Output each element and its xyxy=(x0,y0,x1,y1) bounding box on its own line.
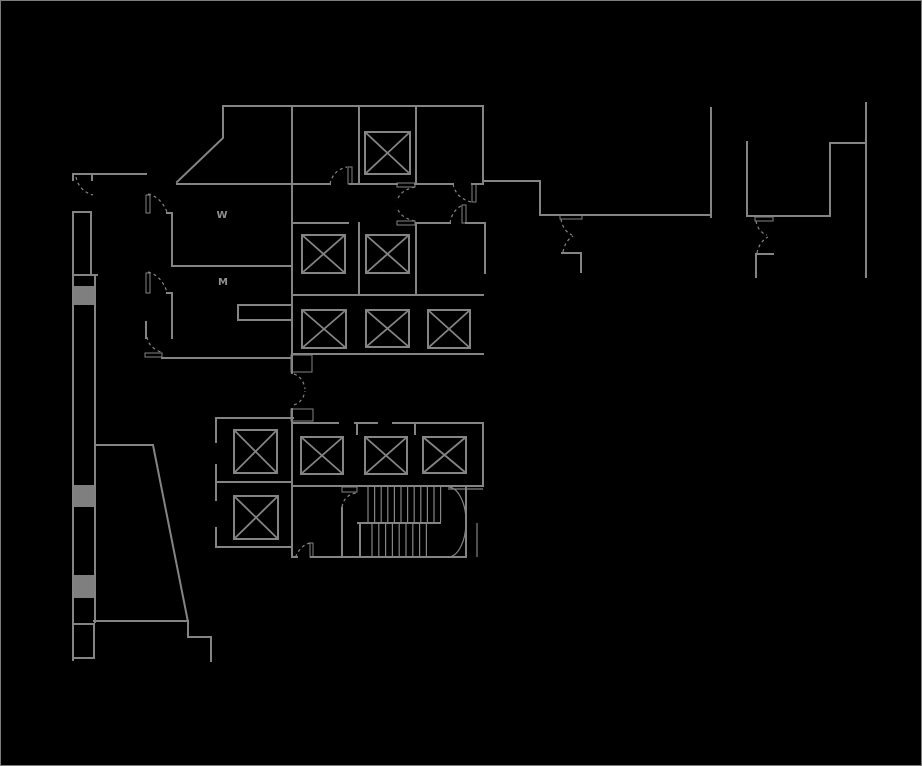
room-label: M xyxy=(218,277,228,288)
room-label: W xyxy=(216,210,227,221)
background xyxy=(0,0,922,766)
wall-column xyxy=(73,575,95,598)
wall-column xyxy=(73,485,95,507)
wall-column xyxy=(73,286,95,305)
floor-plan: WM xyxy=(0,0,922,766)
floor-plan-canvas: WM xyxy=(0,0,922,766)
